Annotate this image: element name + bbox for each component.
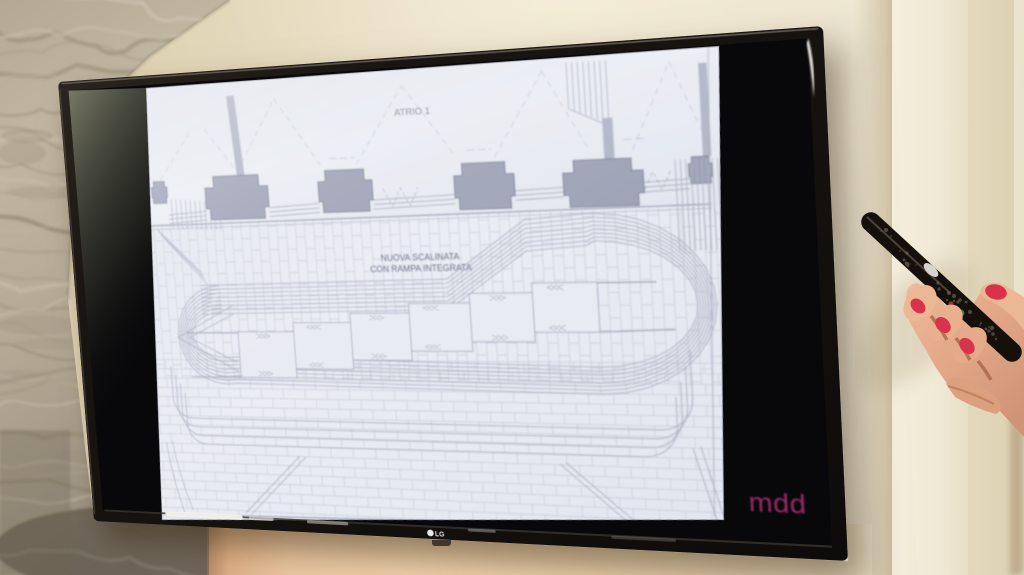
svg-text:mdd: mdd bbox=[748, 487, 807, 520]
svg-text:LG: LG bbox=[435, 531, 445, 539]
